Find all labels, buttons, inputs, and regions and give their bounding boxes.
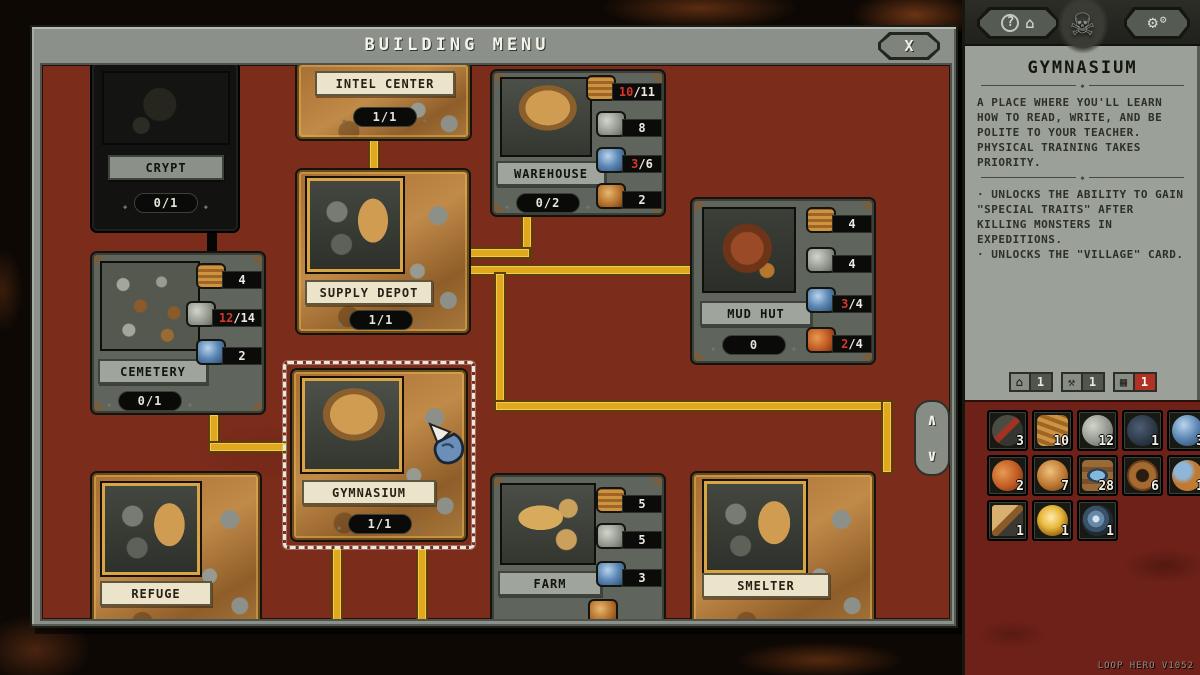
warehouse-cost-sphere: 2 xyxy=(596,183,662,209)
resource-slot-planks: 10 xyxy=(1032,410,1073,451)
mud-hut-image xyxy=(702,207,796,293)
settings-button[interactable]: ⚙ ⚙ xyxy=(1124,7,1190,39)
cemetery-count-badge: 0/1 xyxy=(118,391,182,411)
building-tree-map: CRYPT 0/1 INTEL CENTER 1/1 WAREHOUSE 0/2… xyxy=(40,63,952,621)
intel-center-label: INTEL CENTER xyxy=(315,71,455,96)
building-card-mud-hut[interactable]: MUD HUT 0 4 4 3/4 2/4 xyxy=(690,197,876,365)
connection-line-long-h xyxy=(496,402,891,410)
card-badge: ▦ 1 xyxy=(1113,372,1157,392)
building-card-warehouse[interactable]: WAREHOUSE 0/2 10/11 8 3/6 2 xyxy=(490,69,666,217)
farm-label: FARM xyxy=(498,571,602,596)
sidebar-header: ? ⌂ ☠ ⚙ ⚙ xyxy=(965,0,1200,46)
warehouse-count-badge: 0/2 xyxy=(516,193,580,213)
card-count: 1 xyxy=(1135,372,1157,392)
farm-cost-planks: 5 xyxy=(596,487,662,513)
resource-slot-golden-orb: 1 xyxy=(1032,500,1073,541)
mud-hut-count-badge: 0 xyxy=(722,335,786,355)
smelter-label: SMELTER xyxy=(702,573,830,598)
connection-line-intel-supply xyxy=(370,139,378,169)
warehouse-cost-orb: 3/6 xyxy=(596,147,662,173)
version-label: LOOP HERO V1052 xyxy=(1098,661,1194,671)
building-card-crypt[interactable]: CRYPT 0/1 xyxy=(90,63,240,233)
resource-inventory-panel: 3 10 12 1 3 2 7 28 6 1 1 1 1 LOOP HERO V… xyxy=(965,400,1200,675)
smelter-image xyxy=(704,481,806,573)
building-card-gymnasium-selected[interactable]: GYMNASIUM 1/1 xyxy=(283,361,475,549)
gear-icon: ⚙ xyxy=(1148,13,1158,33)
warehouse-cost-stone: 8 xyxy=(596,111,662,137)
home-icon: ⌂ xyxy=(1009,372,1031,392)
building-menu-panel: BUILDING MENU X CRYPT 0/1 xyxy=(30,25,958,628)
hand-cursor xyxy=(426,422,468,468)
gymnasium-count-badge: 1/1 xyxy=(348,514,412,534)
mud-hut-cost-planks: 4 xyxy=(806,207,872,233)
cemetery-cost-stone: 12/14 xyxy=(186,301,262,327)
resource-slot-amber-sphere: 7 xyxy=(1032,455,1073,496)
farm-cost-partial-icon xyxy=(588,599,618,621)
resource-slot-weapon-parts: 1 xyxy=(1122,410,1163,451)
question-mark-icon: ? xyxy=(1001,14,1019,32)
building-description: A PLACE WHERE YOU'LL LEARN HOW TO READ, … xyxy=(977,95,1188,170)
building-effect-1: · UNLOCKS THE ABILITY TO GAIN "SPECIAL T… xyxy=(977,187,1188,247)
mud-hut-cost-food: 2/4 xyxy=(806,327,872,353)
refuge-image xyxy=(102,483,200,575)
supply-depot-label: SUPPLY DEPOT xyxy=(305,280,433,305)
connection-line-long-v2 xyxy=(883,402,891,472)
cemetery-cost-orb: 2 xyxy=(196,339,262,365)
resource-slot-shingle: 1 xyxy=(987,500,1028,541)
resource-slot-rope: 6 xyxy=(1122,455,1163,496)
farm-cost-orb: 3 xyxy=(596,561,662,587)
resource-slot-food: 2 xyxy=(987,455,1028,496)
building-card-supply-depot[interactable]: SUPPLY DEPOT 1/1 xyxy=(295,168,471,335)
farm-image xyxy=(500,483,596,565)
resource-slot-stone: 12 xyxy=(1077,410,1118,451)
warehouse-image xyxy=(500,77,592,157)
resource-slot-astral-orb: 1 xyxy=(1167,455,1200,496)
resource-slot-memory-fragment: 28 xyxy=(1077,455,1118,496)
close-button[interactable]: X xyxy=(878,32,940,60)
refuge-label: REFUGE xyxy=(100,581,212,606)
building-card-refuge[interactable]: REFUGE xyxy=(90,471,262,621)
connection-line-crypt-cemetery xyxy=(207,231,217,253)
warehouse-cost-planks: 10/11 xyxy=(586,75,662,101)
intel-center-count-badge: 1/1 xyxy=(353,107,417,127)
ornament-divider: ◆ xyxy=(981,173,1184,182)
info-sidebar: ? ⌂ ☠ ⚙ ⚙ GYMNASIUM ◆ A PLACE WHERE YOU'… xyxy=(962,0,1200,675)
cemetery-label: CEMETERY xyxy=(98,359,208,384)
connection-line-cemetery-gym-h xyxy=(210,443,286,451)
building-menu-title: BUILDING MENU xyxy=(32,35,882,55)
building-card-intel-center[interactable]: INTEL CENTER 1/1 xyxy=(295,63,472,141)
skull-icon: ☠ xyxy=(1071,0,1094,44)
building-card-smelter[interactable]: SMELTER xyxy=(690,471,876,621)
map-scrollbar: ∧ ∨ xyxy=(914,400,950,476)
camp-buildings-badge: ⌂ 1 xyxy=(1009,372,1053,392)
skull-emblem: ☠ xyxy=(1046,0,1120,70)
mud-hut-label: MUD HUT xyxy=(700,301,812,326)
connection-line-supply-mudhut xyxy=(469,266,692,274)
tools-count: 1 xyxy=(1083,372,1105,392)
ornament-divider: ◆ xyxy=(981,81,1184,90)
cemetery-cost-planks: 4 xyxy=(196,263,262,289)
building-card-cemetery[interactable]: CEMETERY 0/1 4 12/14 2 xyxy=(90,251,266,415)
resource-slot-ancient-shell: 1 xyxy=(1077,500,1118,541)
connection-line-gym-down-2 xyxy=(418,549,426,621)
crypt-label: CRYPT xyxy=(108,155,224,180)
gymnasium-image xyxy=(302,378,402,472)
building-card-farm[interactable]: FARM 5 5 3 xyxy=(490,473,666,621)
mud-hut-cost-orb: 3/4 xyxy=(806,287,872,313)
scroll-up-button[interactable]: ∧ xyxy=(918,409,946,431)
gymnasium-label: GYMNASIUM xyxy=(302,480,436,505)
camp-buildings-count: 1 xyxy=(1031,372,1053,392)
building-effect-2: · UNLOCKS THE "VILLAGE" CARD. xyxy=(977,247,1188,262)
game-screen: BUILDING MENU X CRYPT 0/1 xyxy=(0,0,1200,675)
warehouse-label: WAREHOUSE xyxy=(496,161,606,186)
supply-depot-image xyxy=(307,178,403,272)
structure-count-badges: ⌂ 1 ⚒ 1 ▦ 1 xyxy=(965,372,1200,392)
card-icon: ▦ xyxy=(1113,372,1135,392)
connection-line-gym-down-1 xyxy=(333,549,341,621)
camp-icon: ⌂ xyxy=(1025,14,1034,32)
close-x-label: X xyxy=(904,37,913,55)
farm-cost-stone: 5 xyxy=(596,523,662,549)
resource-slot-scrap: 3 xyxy=(987,410,1028,451)
tools-badge: ⚒ 1 xyxy=(1061,372,1105,392)
resource-grid: 3 10 12 1 3 2 7 28 6 1 1 1 1 xyxy=(987,410,1200,541)
crypt-count-badge: 0/1 xyxy=(134,193,198,213)
diamond-ornament-icon: ◆ xyxy=(1076,174,1088,182)
connection-line-warehouse-h xyxy=(469,249,529,257)
mud-hut-cost-stone: 4 xyxy=(806,247,872,273)
scroll-down-button[interactable]: ∨ xyxy=(918,445,946,467)
tools-icon: ⚒ xyxy=(1061,372,1083,392)
crypt-image xyxy=(102,71,230,145)
supply-depot-count-badge: 1/1 xyxy=(349,310,413,330)
connection-line-long-v1 xyxy=(496,274,504,408)
gear-icon-small: ⚙ xyxy=(1160,13,1167,26)
resource-slot-metal-orb: 3 xyxy=(1167,410,1200,451)
diamond-ornament-icon: ◆ xyxy=(1076,82,1088,90)
